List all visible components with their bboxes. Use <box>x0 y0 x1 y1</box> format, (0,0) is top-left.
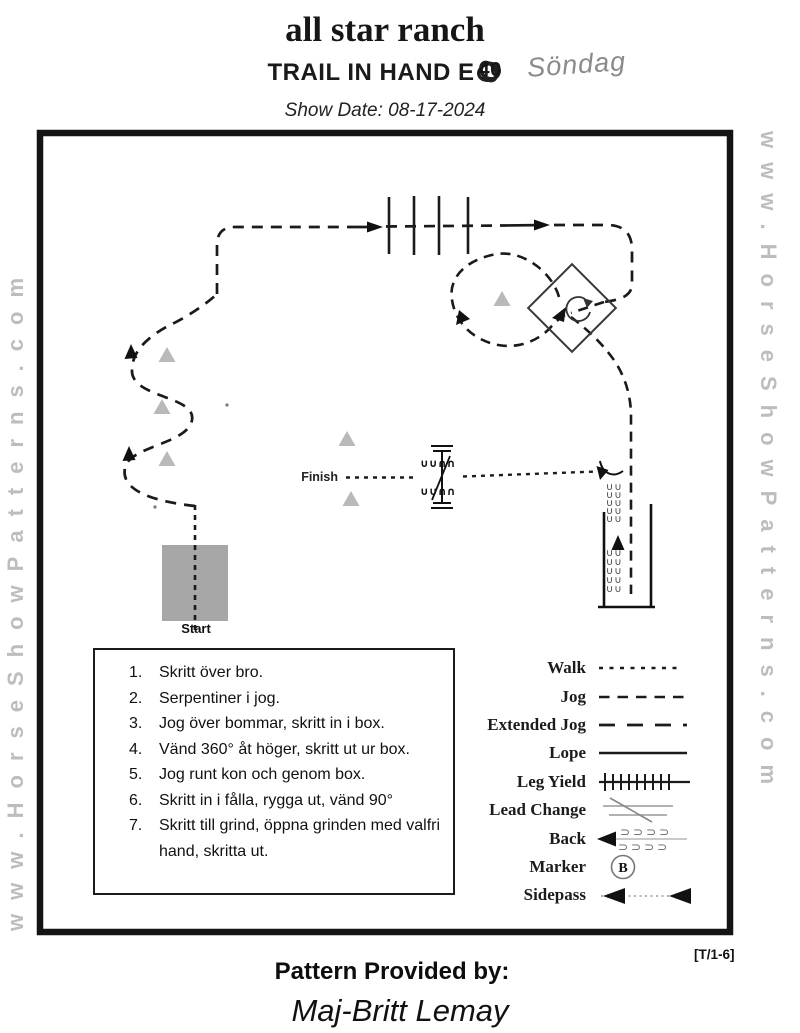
instructions-box: Skritt över bro. Serpentiner i jog. Jog … <box>93 648 455 895</box>
legend-label: Sidepass <box>462 885 595 905</box>
svg-text:∪∪: ∪∪ <box>606 584 623 595</box>
cone <box>159 347 176 362</box>
svg-text:⊃⊃⊃⊃: ⊃⊃⊃⊃ <box>620 826 672 839</box>
arrow-right-icon <box>367 222 383 233</box>
sidepass-icon <box>595 882 701 908</box>
spin-arrowhead-icon <box>583 298 593 308</box>
cone <box>159 451 176 466</box>
arrow-right-icon <box>534 220 550 231</box>
svg-text:⊃⊃⊃⊃: ⊃⊃⊃⊃ <box>618 840 670 852</box>
legend-label: Extended Jog <box>462 715 595 735</box>
legend-row: Marker B <box>462 853 712 881</box>
marker-icon: B <box>595 854 701 880</box>
legend-row: Leg Yield <box>462 768 712 796</box>
instruction-item: Serpentiner i jog. <box>95 686 447 712</box>
leg-yield-icon <box>595 769 701 795</box>
instruction-item: Jog över bommar, skritt in i box. <box>95 711 447 737</box>
legend-label: Leg Yield <box>462 772 595 792</box>
legend-row: Sidepass <box>462 881 712 909</box>
marker-letter: B <box>618 861 627 876</box>
instruction-item: Skritt över bro. <box>95 660 447 686</box>
back-icon: ⊃⊃⊃⊃ ⊃⊃⊃⊃ <box>595 826 701 852</box>
legend-row: Back ⊃⊃⊃⊃ ⊃⊃⊃⊃ <box>462 824 712 852</box>
arrow-up-icon <box>125 344 138 359</box>
legend-row: Extended Jog <box>462 711 712 739</box>
lead-change-icon <box>595 797 701 823</box>
serpentine-jog-path <box>125 294 217 506</box>
gate-hoofprints: ∪∪∩∩ ∪∪∩∩ <box>420 457 456 498</box>
arrow-up-icon <box>123 446 136 461</box>
arrow-up-icon <box>456 310 470 325</box>
legend-label: Back <box>462 829 595 849</box>
legend-row: Walk <box>462 654 712 682</box>
legend-row: Jog <box>462 682 712 710</box>
extended-jog-line-icon <box>595 712 701 738</box>
legend-label: Lope <box>462 743 595 763</box>
svg-text:∪∪: ∪∪ <box>606 514 623 525</box>
provider-name: Maj-Britt Lemay <box>0 993 800 1029</box>
jog-line-icon <box>595 684 701 710</box>
lope-line-icon <box>595 740 701 766</box>
pen-obstacle: ∪∪∪∪ ∪∪∪∪∪∪ ∪∪∪∪ ∪∪∪∪∪∪ <box>597 461 656 607</box>
box-direction-arrow <box>552 307 566 322</box>
trail-pattern-sheet: all star ranch TRAIL IN HAND E40 Söndag … <box>0 0 800 1033</box>
legend-row: Lead Change <box>462 796 712 824</box>
turn-box-obstacle <box>528 264 616 352</box>
cone <box>343 491 360 506</box>
svg-text:∪∪∩∩: ∪∪∩∩ <box>420 457 456 470</box>
legend-label: Jog <box>462 687 595 707</box>
instruction-item: Skritt till grind, öppna grinden med val… <box>95 813 447 864</box>
svg-text:∪∪∩∩: ∪∪∩∩ <box>420 485 456 498</box>
cone <box>494 291 511 306</box>
cone <box>339 431 356 446</box>
legend: Walk Jog Extended Jog Lope Leg Yield <box>462 654 712 910</box>
top-jog-path <box>217 225 632 302</box>
back-hoofprints: ∪∪∪∪ ∪∪∪∪∪∪ ∪∪∪∪ ∪∪∪∪∪∪ <box>606 482 623 595</box>
instructions-list: Skritt över bro. Serpentiner i jog. Jog … <box>95 650 453 864</box>
legend-label: Walk <box>462 658 595 678</box>
start-label: Start <box>181 621 211 636</box>
walk-line-icon <box>595 655 701 681</box>
legend-label: Marker <box>462 857 595 877</box>
finish-walk-line <box>346 472 597 478</box>
instruction-item: Vänd 360° åt höger, skritt ut ur box. <box>95 737 447 763</box>
legend-row: Lope <box>462 739 712 767</box>
instruction-item: Jog runt kon och genom box. <box>95 762 447 788</box>
cone <box>154 399 171 414</box>
legend-label: Lead Change <box>462 800 595 820</box>
back-out-arrow <box>612 535 625 550</box>
instruction-item: Skritt in i fålla, rygga ut, vänd 90° <box>95 788 447 814</box>
finish-label: Finish <box>301 470 338 484</box>
gate-obstacle: ∪∪∩∩ ∪∪∩∩ <box>420 446 456 508</box>
provided-by-label: Pattern Provided by: <box>0 958 784 986</box>
